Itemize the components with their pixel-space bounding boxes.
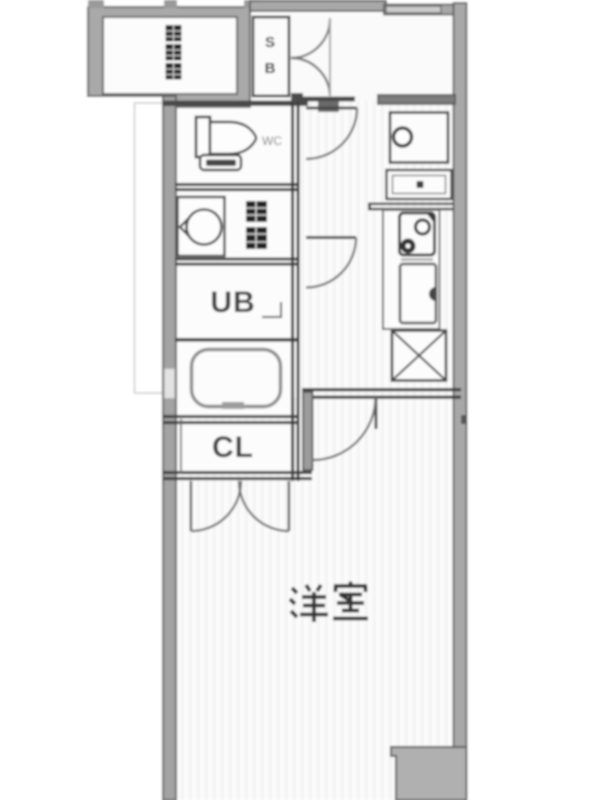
svg-text:UB: UB: [210, 286, 255, 319]
svg-text:B: B: [265, 60, 276, 77]
svg-text:S: S: [265, 34, 275, 51]
svg-text:WC: WC: [262, 134, 282, 148]
svg-text:CL: CL: [212, 431, 254, 464]
